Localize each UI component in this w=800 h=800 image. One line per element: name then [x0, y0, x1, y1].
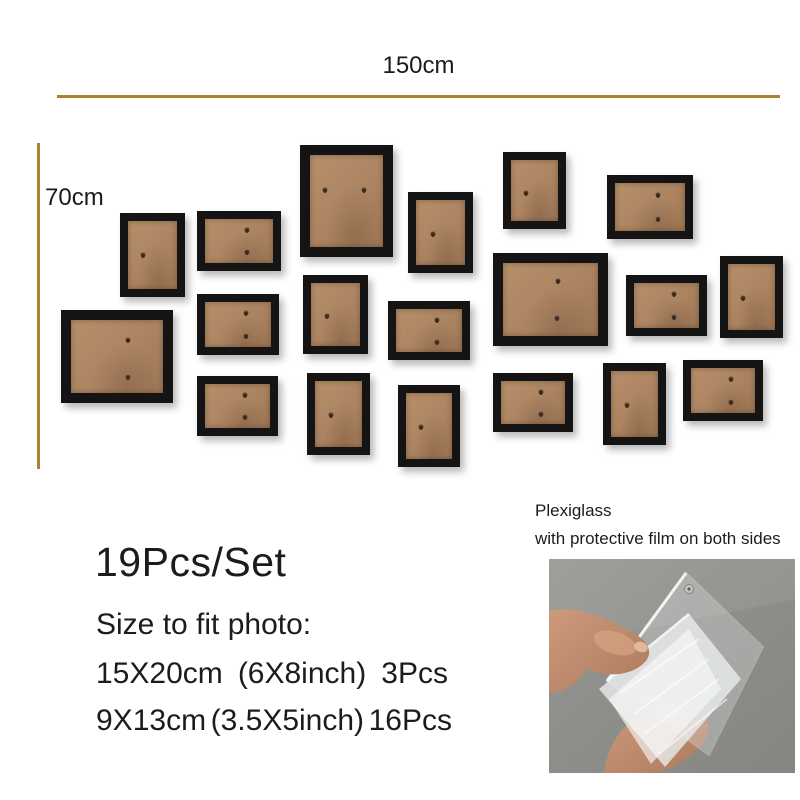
hanging-hook-icon — [741, 295, 746, 301]
frame-backing-board — [310, 155, 383, 247]
photo-frame-small-landscape — [493, 373, 573, 432]
size-cm: 15X20cm — [96, 657, 223, 691]
size-qty: 3Pcs — [381, 657, 448, 691]
hanging-hook-icon — [431, 231, 436, 237]
frame-backing-board — [615, 183, 685, 231]
size-inch: (6X8inch) — [238, 657, 366, 691]
plexiglass-photo-illustration — [549, 559, 795, 773]
frame-backing-board — [501, 381, 565, 424]
photo-frame-small-landscape — [626, 275, 707, 336]
photo-frame-small-landscape — [388, 301, 470, 360]
frame-backing-board — [205, 302, 271, 347]
hanging-hook-icon — [243, 392, 248, 398]
plexiglass-title: Plexiglass — [535, 501, 612, 521]
hanging-hook-icon — [538, 389, 543, 395]
frame-backing-board — [71, 320, 163, 393]
photo-frame-small-portrait — [303, 275, 368, 354]
hanging-hook-icon — [656, 216, 661, 222]
hanging-hook-icon — [555, 315, 560, 321]
photo-frame-small-portrait — [307, 373, 370, 455]
size-row-large: 15X20cm (6X8inch) 3Pcs — [96, 657, 448, 691]
photo-frame-small-portrait — [603, 363, 666, 445]
frame-backing-board — [611, 371, 658, 437]
frame-backing-board — [503, 263, 598, 336]
size-row-small: 9X13cm (3.5X5inch) 16Pcs — [96, 704, 452, 738]
frame-backing-board — [128, 221, 177, 289]
hanging-hook-icon — [556, 278, 561, 284]
hanging-hook-icon — [126, 337, 131, 343]
frame-backing-board — [728, 264, 775, 330]
frame-backing-board — [511, 160, 558, 221]
frame-wall — [0, 0, 800, 500]
photo-frame-small-landscape — [607, 175, 693, 239]
photo-frame-small-portrait — [120, 213, 185, 297]
frame-backing-board — [634, 283, 699, 328]
frame-backing-board — [691, 368, 755, 413]
hanging-hook-icon — [245, 227, 250, 233]
photo-frame-large-landscape — [61, 310, 173, 403]
size-qty: 16Pcs — [369, 704, 452, 738]
photo-frame-small-landscape — [197, 376, 278, 436]
frame-backing-board — [406, 393, 452, 459]
fit-size-heading: Size to fit photo: — [96, 608, 311, 642]
hanging-hook-icon — [243, 414, 248, 420]
hanging-hook-icon — [624, 402, 629, 408]
hanging-hook-icon — [419, 424, 424, 430]
hanging-hook-icon — [325, 313, 330, 319]
photo-frame-small-portrait — [408, 192, 473, 273]
hanging-hook-icon — [672, 314, 677, 320]
hanging-hook-icon — [672, 291, 677, 297]
hanging-hook-icon — [728, 376, 733, 382]
photo-frame-large-landscape — [493, 253, 608, 346]
frame-backing-board — [205, 219, 273, 263]
hanging-hook-icon — [538, 411, 543, 417]
photo-frame-small-landscape — [683, 360, 763, 421]
photo-frame-large-portrait — [300, 145, 393, 257]
photo-frame-small-portrait — [720, 256, 783, 338]
photo-frame-small-landscape — [197, 211, 281, 271]
hanging-hook-icon — [656, 192, 661, 198]
frame-backing-board — [311, 283, 360, 346]
hanging-hook-icon — [434, 317, 439, 323]
plexiglass-photo — [549, 559, 795, 773]
plexiglass-subtitle: with protective film on both sides — [535, 529, 781, 549]
photo-frame-small-portrait — [398, 385, 460, 467]
hanging-hook-icon — [434, 339, 439, 345]
photo-frame-small-landscape — [197, 294, 279, 355]
hanging-hook-icon — [126, 374, 131, 380]
hanging-hook-icon — [362, 187, 367, 193]
hanging-hook-icon — [140, 252, 145, 258]
frame-backing-board — [416, 200, 465, 265]
hanging-hook-icon — [524, 190, 529, 196]
frame-backing-board — [315, 381, 362, 447]
set-count-label: 19Pcs/Set — [95, 539, 286, 586]
frame-backing-board — [205, 384, 270, 428]
photo-frame-small-portrait — [503, 152, 566, 229]
hanging-hook-icon — [243, 310, 248, 316]
frame-backing-board — [396, 309, 462, 352]
hanging-hook-icon — [243, 333, 248, 339]
hanging-hook-icon — [245, 249, 250, 255]
hanging-hook-icon — [323, 187, 328, 193]
hanging-hook-icon — [728, 399, 733, 405]
size-inch: (3.5X5inch) — [211, 704, 364, 738]
hanging-hook-icon — [328, 412, 333, 418]
size-cm: 9X13cm — [96, 704, 206, 738]
